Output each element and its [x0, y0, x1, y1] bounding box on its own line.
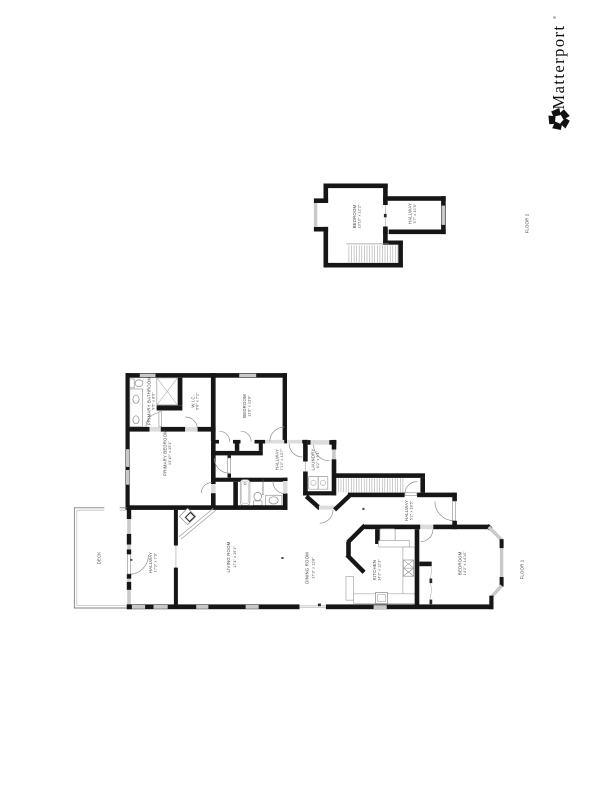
svg-text:17’3" x 7’9": 17’3" x 7’9" [154, 552, 158, 572]
svg-text:17’3" x 11’8": 17’3" x 11’8" [311, 557, 315, 579]
svg-text:6’2" x 5’1": 6’2" x 5’1" [316, 450, 320, 468]
svg-text:FLOOR 1: FLOOR 1 [519, 559, 524, 579]
svg-text:HALLWAY: HALLWAY [408, 203, 413, 224]
svg-text:DECK: DECK [97, 552, 102, 565]
svg-text:BATHROOM: BATHROOM [261, 480, 265, 496]
svg-text:5’7" x 10’5": 5’7" x 10’5" [413, 203, 417, 223]
svg-text:Matterport: Matterport [549, 24, 568, 109]
svg-text:FLOOR 2: FLOOR 2 [524, 213, 529, 233]
svg-text:11’8" x 13’8": 11’8" x 13’8" [247, 395, 251, 417]
svg-text:HALLWAY: HALLWAY [274, 449, 279, 470]
svg-text:13’10" x 12’2": 13’10" x 12’2" [357, 204, 361, 228]
svg-text:7’10" x 13’7": 7’10" x 13’7" [280, 448, 284, 470]
svg-text:BEDROOM: BEDROOM [458, 551, 463, 575]
svg-text:PRIMARY BEDROOM: PRIMARY BEDROOM [162, 430, 167, 476]
svg-text:DINING ROOM: DINING ROOM [304, 552, 309, 584]
svg-text:9’5" x 8’9": 9’5" x 8’9" [152, 392, 156, 410]
svg-text:14’2" x 12’3": 14’2" x 12’3" [377, 559, 381, 581]
svg-text:BEDROOM: BEDROOM [242, 394, 247, 418]
svg-text:HALLWAY: HALLWAY [148, 552, 153, 573]
svg-text:®: ® [552, 16, 557, 19]
svg-text:LIVING ROOM: LIVING ROOM [226, 541, 231, 572]
svg-text:5’2" x 18’5": 5’2" x 18’5" [410, 500, 414, 520]
svg-text:14’2" x 14’10": 14’2" x 14’10" [463, 551, 467, 575]
svg-text:13’10" x 15’1": 13’10" x 15’1" [168, 440, 172, 464]
svg-text:5’6" x 7’2": 5’6" x 7’2" [196, 392, 200, 410]
svg-text:LAUNDRY: LAUNDRY [310, 449, 315, 471]
svg-text:KITCHEN: KITCHEN [372, 560, 377, 580]
svg-text:HALLWAY: HALLWAY [404, 500, 409, 521]
svg-text:BEDROOM: BEDROOM [352, 204, 357, 228]
svg-text:W.I.C.: W.I.C. [190, 395, 195, 408]
svg-text:17’4" x 19’1": 17’4" x 19’1" [233, 546, 237, 568]
svg-text:PRIMARY BATHROOM: PRIMARY BATHROOM [146, 377, 151, 426]
